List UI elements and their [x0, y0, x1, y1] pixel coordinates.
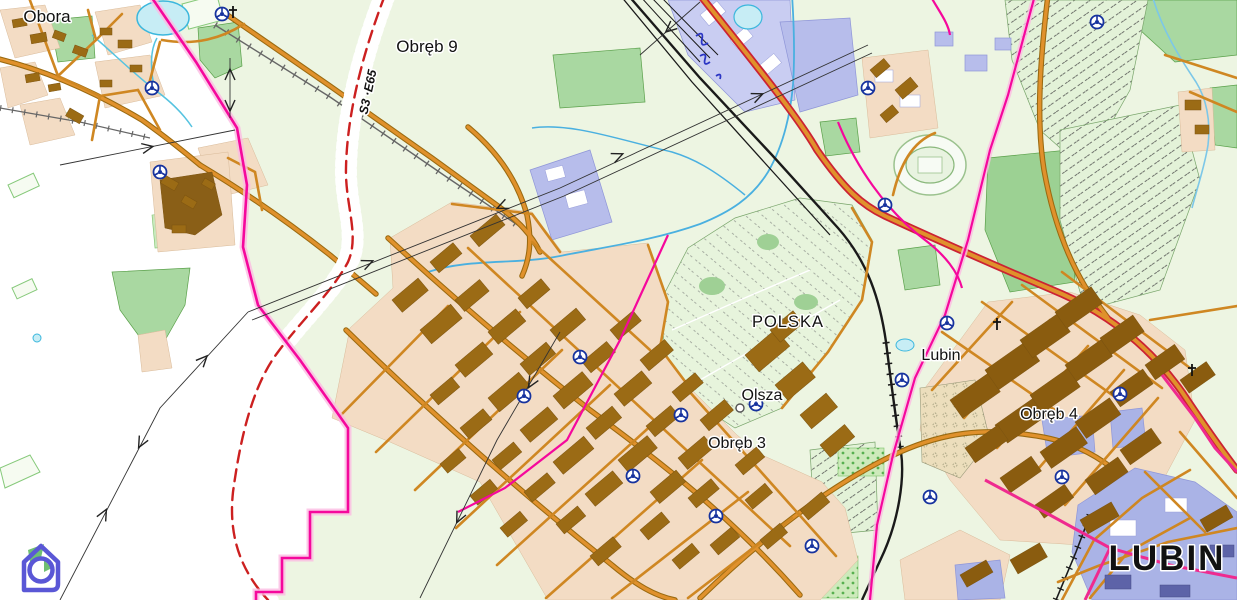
label-lubin-city: LUBIN: [1109, 539, 1226, 578]
label-obreb3: Obręb 3: [708, 435, 766, 452]
olsza-place-marker: [736, 404, 744, 412]
label-obora: Obora: [23, 7, 71, 26]
stadium: [894, 135, 966, 195]
label-olsza: Olsza: [742, 387, 783, 404]
city-map[interactable]: Obora Obręb 9 S3 ·E65 POLSKA Lubin Olsza…: [0, 0, 1237, 600]
label-lubin-district: Lubin: [921, 347, 960, 364]
map-viewport[interactable]: Obora Obręb 9 S3 ·E65 POLSKA Lubin Olsza…: [0, 0, 1237, 600]
label-obreb9: Obręb 9: [396, 37, 457, 56]
label-obreb4: Obręb 4: [1020, 406, 1078, 423]
label-polska: POLSKA: [752, 313, 824, 331]
